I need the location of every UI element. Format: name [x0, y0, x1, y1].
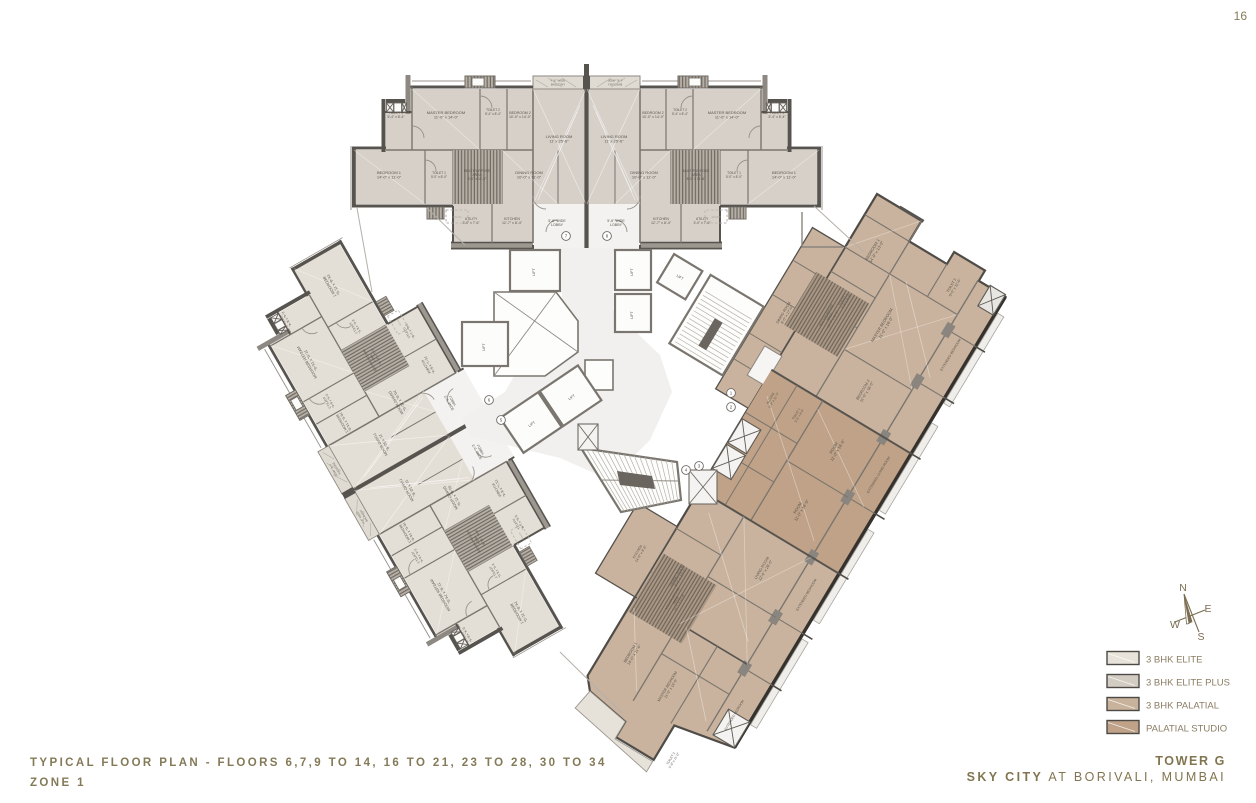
svg-text:3 BHK PALATIAL: 3 BHK PALATIAL — [1146, 701, 1219, 712]
svg-text:SKY CITY AT BORIVALI, MUMBAI: SKY CITY AT BORIVALI, MUMBAI — [967, 770, 1226, 784]
svg-text:16: 16 — [1234, 9, 1248, 23]
svg-text:S: S — [1197, 631, 1204, 643]
svg-text:PALATIAL STUDIO: PALATIAL STUDIO — [1146, 724, 1227, 735]
svg-text:ZONE 1: ZONE 1 — [30, 777, 86, 789]
svg-text:3 BHK ELITE: 3 BHK ELITE — [1146, 655, 1203, 666]
svg-text:N: N — [1179, 582, 1187, 594]
svg-text:E: E — [1204, 603, 1211, 615]
svg-text:W: W — [1170, 619, 1180, 631]
svg-text:TOWER G: TOWER G — [1155, 754, 1226, 768]
svg-text:LIFT: LIFT — [630, 268, 634, 276]
svg-text:TYPICAL FLOOR PLAN - FLOORS 6,: TYPICAL FLOOR PLAN - FLOORS 6,7,9 TO 14,… — [30, 757, 607, 769]
svg-text:3 BHK ELITE PLUS: 3 BHK ELITE PLUS — [1146, 678, 1230, 689]
svg-text:LIFT: LIFT — [482, 343, 486, 351]
svg-text:LIFT: LIFT — [630, 311, 634, 319]
svg-text:LIFT: LIFT — [532, 268, 536, 276]
